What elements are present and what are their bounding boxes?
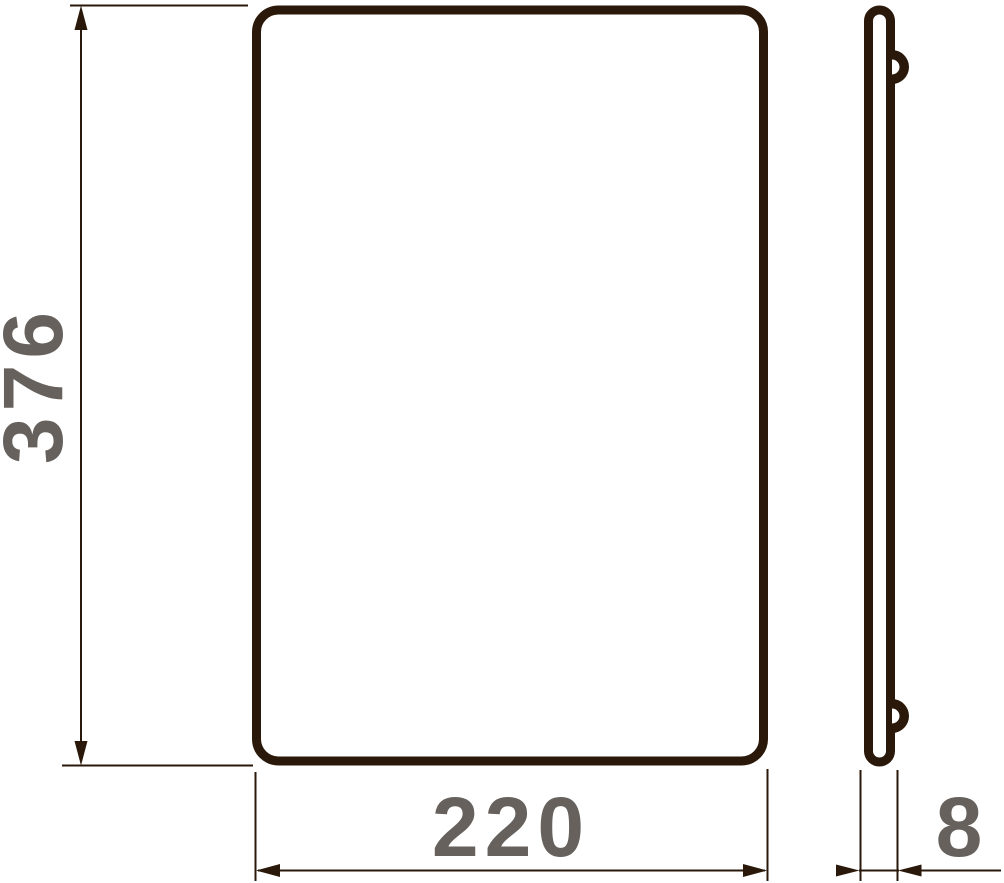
width-dimension-label: 220 — [432, 780, 590, 874]
width-arrow-left-icon — [256, 864, 280, 877]
hanger-hook-bottom-icon — [892, 699, 909, 733]
drawing-canvas: 376 220 8 — [0, 0, 1004, 883]
thickness-dimension-label: 8 — [936, 780, 989, 874]
width-arrow-right-icon — [743, 864, 767, 877]
thickness-arrow-left-pointing-icon — [898, 865, 922, 877]
hanger-hook-top-icon — [892, 50, 909, 84]
height-dimension-label: 376 — [0, 306, 80, 464]
technical-drawing: 376 220 8 — [0, 0, 1004, 883]
thickness-dimension: 8 — [836, 770, 1001, 881]
height-arrow-down-icon — [75, 741, 88, 766]
thickness-arrow-right-pointing-icon — [836, 865, 860, 877]
height-arrow-up-icon — [75, 6, 88, 31]
height-dimension: 376 — [0, 6, 253, 766]
width-dimension: 220 — [256, 769, 768, 881]
side-view-outline — [869, 10, 891, 762]
front-view-outline — [257, 10, 764, 761]
